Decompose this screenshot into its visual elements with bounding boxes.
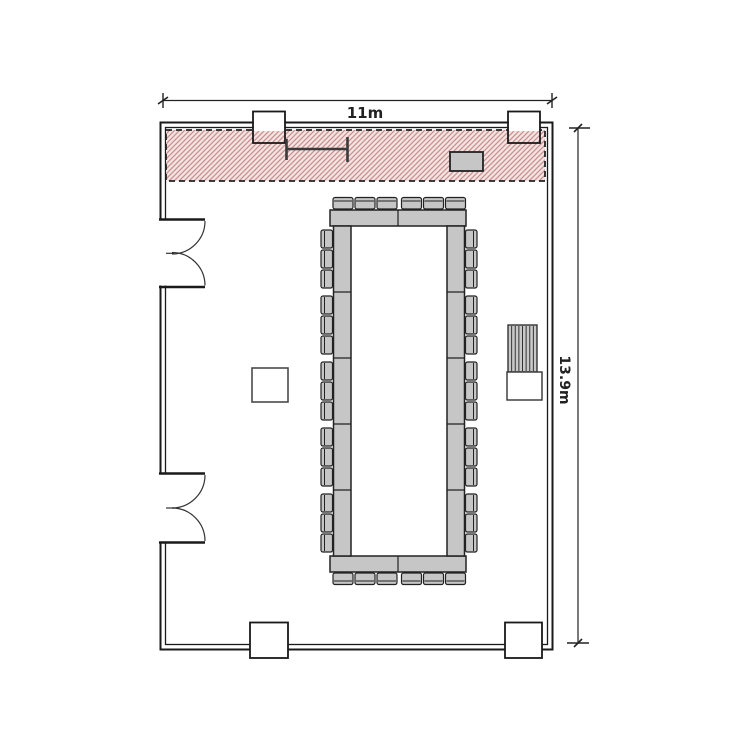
chair: [321, 316, 333, 334]
chair: [333, 573, 353, 585]
chairs-left: [321, 230, 333, 552]
chair: [466, 296, 478, 314]
floor-box: [252, 368, 288, 402]
chair: [466, 336, 478, 354]
chair: [466, 316, 478, 334]
pillar-bottom-right: [505, 623, 542, 659]
chair: [355, 198, 375, 210]
chair: [321, 534, 333, 552]
chair: [466, 270, 478, 288]
service-fixture-base: [507, 372, 542, 400]
chair: [321, 250, 333, 268]
chair: [355, 573, 375, 585]
chairs-right: [466, 230, 478, 552]
chair: [466, 230, 478, 248]
chair: [446, 198, 466, 210]
chair: [466, 428, 478, 446]
equipment-box: [450, 152, 483, 171]
chair: [466, 514, 478, 532]
chair: [377, 573, 397, 585]
chair: [446, 573, 466, 585]
chair: [321, 296, 333, 314]
chair: [321, 270, 333, 288]
chair: [466, 494, 478, 512]
chair: [466, 534, 478, 552]
chair: [466, 382, 478, 400]
chair: [333, 198, 353, 210]
chair: [466, 468, 478, 486]
chair: [321, 336, 333, 354]
chair: [321, 448, 333, 466]
chair: [321, 362, 333, 380]
service-stripes: [512, 326, 534, 371]
chair: [321, 514, 333, 532]
service-fixture: [507, 325, 542, 400]
chair: [321, 428, 333, 446]
chair: [466, 402, 478, 420]
chair: [321, 494, 333, 512]
floor-plan-svg: 11m 13.9m: [0, 0, 750, 750]
chair: [321, 382, 333, 400]
chair: [466, 448, 478, 466]
dimension-label-height: 13.9m: [556, 355, 572, 404]
chair: [321, 468, 333, 486]
restricted-zone-hatch: [166, 130, 545, 181]
chair: [402, 573, 422, 585]
chair: [424, 573, 444, 585]
chair: [466, 250, 478, 268]
chair: [377, 198, 397, 210]
chair: [321, 230, 333, 248]
dimension-label-width: 11m: [347, 104, 384, 122]
dimension-right: 13.9m: [556, 124, 590, 647]
table-right-band: [447, 226, 465, 556]
pillar-bottom-left: [250, 623, 288, 659]
chair: [466, 362, 478, 380]
chair: [402, 198, 422, 210]
table-left-band: [334, 226, 352, 556]
dimension-top: 11m: [158, 93, 557, 122]
floor-plan-canvas: 11m 13.9m: [0, 0, 750, 750]
chair: [424, 198, 444, 210]
chair: [321, 402, 333, 420]
